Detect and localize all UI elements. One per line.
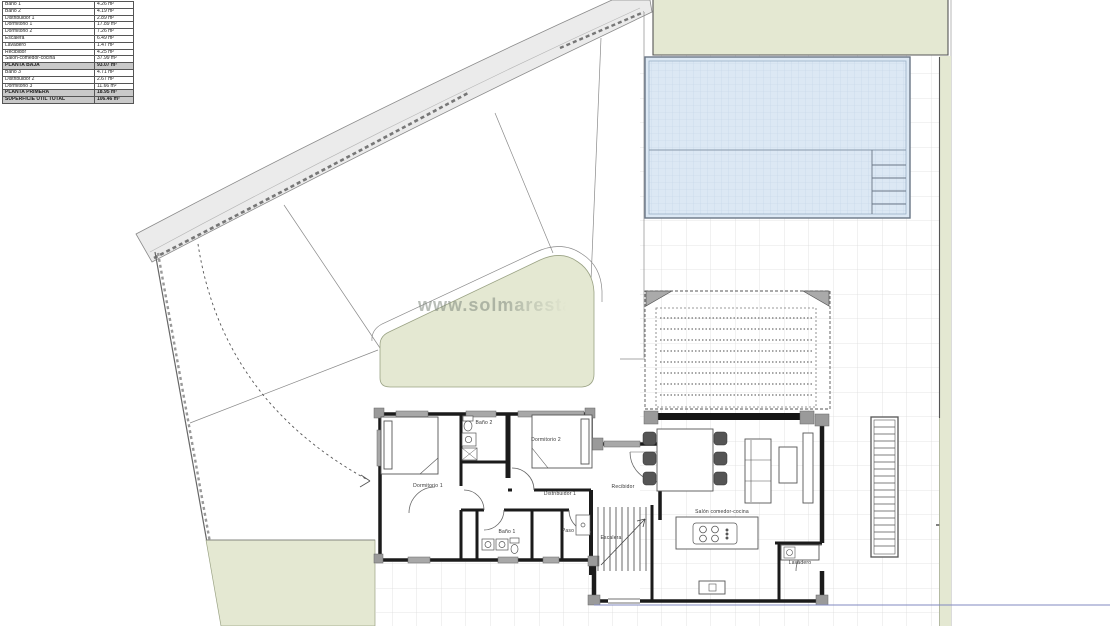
legend-row: Lavadero1.47 m²: [3, 42, 134, 49]
coffee-table: [779, 447, 797, 483]
legend-row: Salón-comedor-cocina37.99 m²: [3, 56, 134, 63]
lawn-bottom-left: [206, 540, 375, 626]
legend-row: Distribuidor 12.89 m²: [3, 15, 134, 22]
legend-row: Baño 34.71 m²: [3, 69, 134, 76]
legend-row: Dormitorio 311.66 m²: [3, 83, 134, 90]
bed-dormitorio1: [381, 417, 438, 474]
room-area: 2.67 m²: [95, 76, 134, 83]
room-area: 4.25 m²: [95, 49, 134, 56]
room-name: Baño 2: [3, 8, 95, 15]
room-area: 1.47 m²: [95, 42, 134, 49]
swimming-pool: [645, 57, 910, 218]
room-name: Dormitorio 1: [3, 22, 95, 29]
stairs-outdoor: [871, 417, 898, 557]
room-area: 11.66 m²: [95, 83, 134, 90]
room-name: Recibidor: [3, 49, 95, 56]
floor-name: PLANTA PRIMERA: [3, 90, 95, 97]
floor-name: PLANTA BAJA: [3, 63, 95, 70]
room-label-lavadero: Lavadero: [789, 560, 811, 566]
room-label-dormitorio1: Dormitorio 1: [413, 483, 443, 489]
road-band: [136, 0, 652, 262]
site-plan-page: Baño 14.26 m² Baño 24.19 m² Distribuidor…: [0, 0, 1110, 626]
legend-row-total: SUPERFICIE ÚTIL TOTAL106.46 m²: [3, 97, 134, 104]
washer: [781, 545, 819, 560]
floor-area: 93.07 m²: [95, 63, 134, 70]
total-name: SUPERFICIE ÚTIL TOTAL: [3, 97, 95, 104]
room-name: Baño 1: [3, 2, 95, 9]
lawn-top-band: [653, 0, 948, 55]
watermark-text: www.solmaresta: [418, 295, 573, 316]
legend-row: Dormitorio 27.26 m²: [3, 29, 134, 36]
room-area: 7.26 m²: [95, 29, 134, 36]
room-name: Distribuidor 1: [3, 15, 95, 22]
bath1-fixtures: [482, 538, 519, 554]
room-name: Distribuidor 2: [3, 76, 95, 83]
legend-row-planta-primera: PLANTA PRIMERA18.95 m²: [3, 90, 134, 97]
sofa: [745, 439, 771, 503]
room-area: 17.89 m²: [95, 22, 134, 29]
room-label-dormitorio2: Dormitorio 2: [531, 437, 561, 443]
room-name: Dormitorio 3: [3, 83, 95, 90]
legend-row: Dormitorio 117.89 m²: [3, 22, 134, 29]
room-name: Lavadero: [3, 42, 95, 49]
room-label-recibidor: Recibidor: [612, 484, 635, 490]
room-label-escalera: Escalera: [600, 535, 621, 541]
legend-row: Recibidor4.25 m²: [3, 49, 134, 56]
legend-row: Baño 24.19 m²: [3, 8, 134, 15]
room-area: 6.49 m²: [95, 35, 134, 42]
tv-bench: [803, 433, 813, 503]
room-area: 4.19 m²: [95, 8, 134, 15]
room-label-salon: Salón comedor-cocina: [695, 509, 749, 515]
legend-row: Baño 14.26 m²: [3, 2, 134, 9]
driveway-arrow: [198, 244, 370, 487]
room-label-bano2: Baño 2: [475, 420, 492, 426]
room-label-distribuidor1: Distribuidor 1: [544, 491, 576, 497]
room-area: 2.89 m²: [95, 15, 134, 22]
legend-row-planta-baja: PLANTA BAJA93.07 m²: [3, 63, 134, 70]
room-name: Baño 3: [3, 69, 95, 76]
floor-area: 18.95 m²: [95, 90, 134, 97]
room-name: Salón-comedor-cocina: [3, 56, 95, 63]
legend-row: Distribuidor 22.67 m²: [3, 76, 134, 83]
room-area: 4.26 m²: [95, 2, 134, 9]
legend-row: Escalera6.49 m²: [3, 35, 134, 42]
shower-paso: [576, 515, 590, 535]
room-area: 4.71 m²: [95, 69, 134, 76]
room-area: 37.99 m²: [95, 56, 134, 63]
area-legend-table: Baño 14.26 m² Baño 24.19 m² Distribuidor…: [2, 1, 134, 104]
lawn-right-strip: [940, 56, 952, 626]
kitchen-island: [676, 517, 758, 549]
room-name: Escalera: [3, 35, 95, 42]
sink-cabinet: [699, 581, 725, 594]
glass-door-band: [656, 413, 806, 420]
total-area: 106.46 m²: [95, 97, 134, 104]
dining-set: [643, 429, 727, 491]
room-name: Dormitorio 2: [3, 29, 95, 36]
room-label-bano1: Baño 1: [498, 529, 515, 535]
room-label-paso: Paso: [562, 528, 574, 534]
